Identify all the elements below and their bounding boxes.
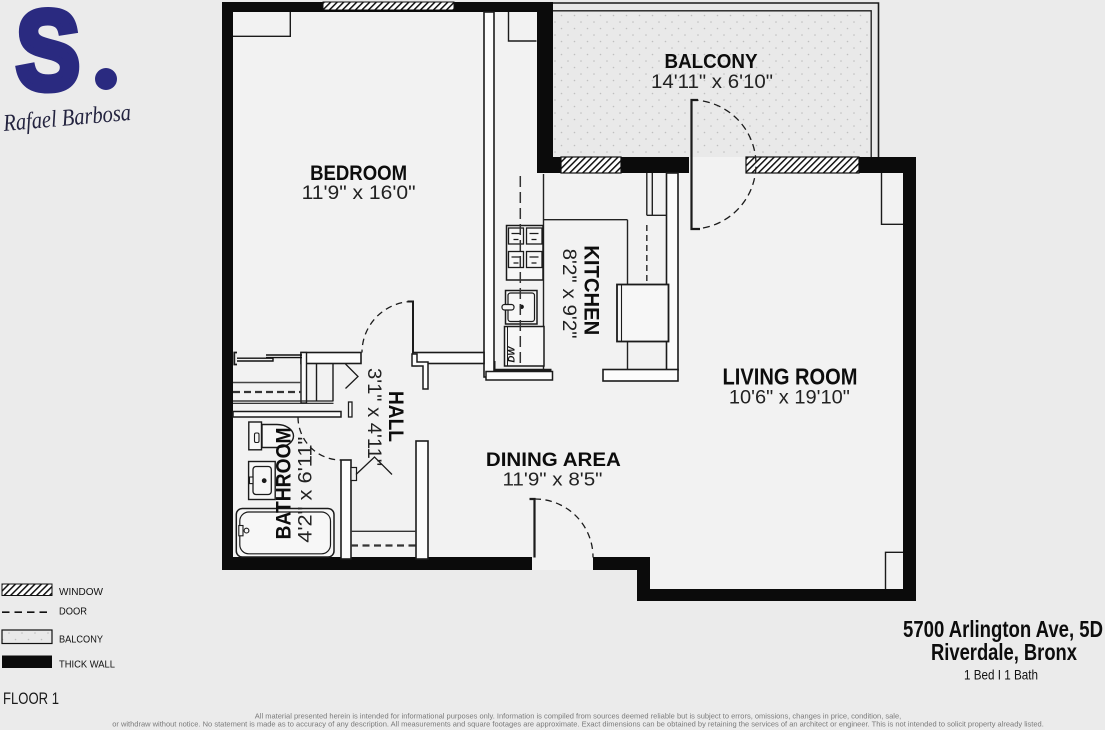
svg-text:DINING AREA: DINING AREA	[486, 450, 621, 471]
svg-text:8'2" x 9'2": 8'2" x 9'2"	[558, 249, 579, 339]
svg-text:BALCONY: BALCONY	[665, 51, 759, 73]
svg-text:or withdraw without notice. No: or withdraw without notice. No statement…	[112, 720, 1044, 729]
svg-text:DOOR: DOOR	[59, 606, 87, 618]
svg-text:LIVING ROOM: LIVING ROOM	[723, 364, 858, 390]
svg-text:DW: DW	[507, 346, 518, 363]
svg-text:BATHROOM: BATHROOM	[273, 427, 296, 539]
svg-text:14'11" x 6'10": 14'11" x 6'10"	[651, 72, 773, 93]
svg-text:Riverdale, Bronx: Riverdale, Bronx	[931, 639, 1077, 665]
svg-text:4'2" x 6'11": 4'2" x 6'11"	[296, 437, 317, 543]
svg-text:1 Bed I 1 Bath: 1 Bed I 1 Bath	[964, 667, 1038, 683]
svg-text:WINDOW: WINDOW	[59, 586, 103, 598]
svg-text:KITCHEN: KITCHEN	[580, 245, 603, 335]
svg-text:3'1" x 4'11": 3'1" x 4'11"	[363, 368, 384, 466]
svg-text:BEDROOM: BEDROOM	[310, 162, 407, 185]
svg-text:THICK WALL: THICK WALL	[59, 659, 115, 671]
svg-text:11'9" x 16'0": 11'9" x 16'0"	[302, 183, 416, 204]
svg-text:BALCONY: BALCONY	[59, 634, 103, 646]
svg-text:S: S	[16, 0, 80, 113]
svg-text:10'6" x 19'10": 10'6" x 19'10"	[729, 388, 850, 409]
svg-text:HALL: HALL	[384, 391, 407, 442]
svg-text:11'9" x 8'5": 11'9" x 8'5"	[503, 470, 603, 490]
svg-text:FLOOR 1: FLOOR 1	[3, 690, 59, 708]
